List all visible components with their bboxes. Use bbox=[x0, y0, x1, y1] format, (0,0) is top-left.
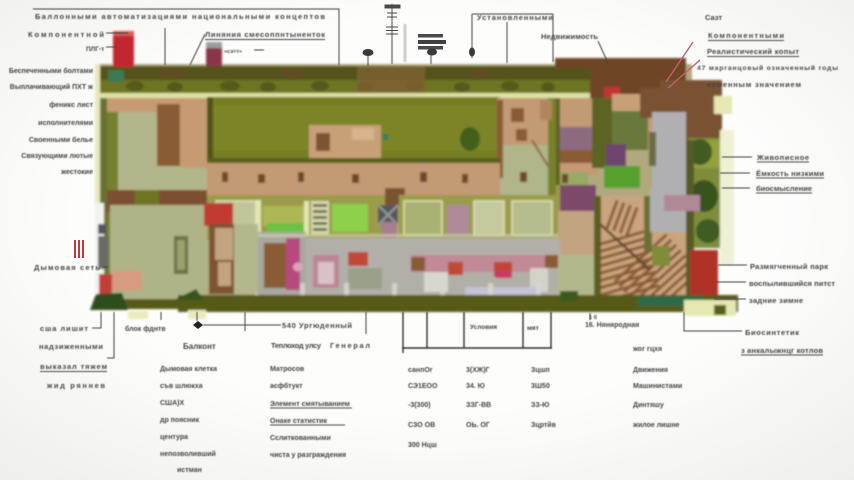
svg-text:47 марганцовый означенный годы: 47 марганцовый означенный годы bbox=[697, 64, 838, 72]
svg-text:исполнителями: исполнителями bbox=[38, 120, 93, 127]
svg-text:жид ряннев: жид ряннев bbox=[46, 381, 105, 390]
svg-text:Машинистами: Машинистами bbox=[633, 383, 682, 390]
svg-text:Зцртйв: Зцртйв bbox=[531, 421, 557, 429]
svg-text:СЗО ОВ: СЗО ОВ bbox=[408, 422, 435, 429]
svg-text:ЗЗ-Ю: ЗЗ-Ю bbox=[531, 402, 549, 409]
svg-text:санпОг: санпОг bbox=[408, 367, 433, 374]
svg-text:Сазт: Сазт bbox=[705, 13, 722, 22]
svg-text:Дымовая сеть: Дымовая сеть bbox=[34, 263, 100, 272]
svg-text:«сэ=т»: «сэ=т» bbox=[224, 49, 242, 55]
svg-text:1 б: 1 б bbox=[589, 314, 598, 321]
svg-text:США)Х: США)Х bbox=[160, 400, 184, 407]
svg-text:каменным значением: каменным значением bbox=[707, 80, 801, 89]
svg-text:др поясник: др поясник bbox=[160, 417, 200, 424]
svg-text:з анкалыжнцг котлов: з анкалыжнцг котлов bbox=[741, 346, 823, 355]
svg-text:-3(300): -3(300) bbox=[408, 402, 431, 409]
svg-text:Биосинтетик: Биосинтетик bbox=[745, 328, 799, 337]
svg-text:Элемент смятыванием: Элемент смятыванием bbox=[270, 401, 350, 408]
svg-text:Линяния смесоппнтыненток: Линяния смесоппнтыненток bbox=[205, 30, 325, 39]
svg-text:Размягченный парк: Размягченный парк bbox=[750, 262, 828, 271]
svg-text:Установленными: Установленными bbox=[477, 13, 553, 22]
svg-text:16. Няняродная: 16. Няняродная bbox=[585, 322, 639, 329]
svg-text:жилое лишне: жилое лишне bbox=[632, 422, 680, 429]
svg-text:Ёмкость низкими: Ёмкость низкими bbox=[756, 169, 824, 178]
svg-text:Динтяшу: Динтяшу bbox=[633, 402, 664, 409]
svg-text:Живописное: Живописное bbox=[756, 153, 809, 162]
svg-text:3Ш50: 3Ш50 bbox=[531, 383, 550, 390]
svg-text:воспылившийся питст: воспылившийся питст bbox=[749, 279, 835, 288]
svg-text:34. Ю: 34. Ю bbox=[466, 383, 485, 390]
svg-text:Онаке статистик: Онаке статистик bbox=[270, 418, 327, 425]
svg-text:Сслиткованными: Сслиткованными bbox=[270, 435, 331, 442]
svg-text:Балконт: Балконт bbox=[183, 342, 216, 351]
svg-text:Компонентными: Компонентными bbox=[708, 31, 784, 40]
svg-text:ЗЗГ-ВВ: ЗЗГ-ВВ bbox=[466, 402, 491, 409]
svg-text:съв шлюкха: съв шлюкха bbox=[160, 383, 203, 390]
svg-text:Реалистический копыт: Реалистический копыт bbox=[707, 47, 799, 56]
svg-text:жестокие: жестокие bbox=[60, 169, 93, 176]
svg-text:биосмысление: биосмысление bbox=[756, 184, 812, 193]
svg-text:Баллонными автоматизациями нац: Баллонными автоматизациями национальными… bbox=[35, 12, 325, 21]
svg-text:300 Нцш: 300 Нцш bbox=[408, 442, 437, 449]
svg-text:Теплоход улсу: Теплоход улсу bbox=[271, 341, 322, 350]
svg-text:задние зимне: задние зимне bbox=[749, 296, 803, 305]
svg-text:асфбтукт: асфбтукт bbox=[270, 382, 303, 390]
svg-text:СЭ1ЕОО: СЭ1ЕОО bbox=[408, 383, 438, 390]
svg-text:феникс лист: феникс лист bbox=[49, 102, 93, 109]
svg-text:истман: истман bbox=[177, 467, 202, 474]
svg-text:жог гцхя: жог гцхя bbox=[632, 346, 662, 353]
svg-text:блок фднтв: блок фднтв bbox=[125, 325, 166, 333]
svg-text:Дымовая клетка: Дымовая клетка bbox=[160, 366, 217, 373]
svg-text:Зцшп: Зцшп bbox=[531, 367, 550, 374]
svg-text:Выплачивающий ПХТ ж: Выплачивающий ПХТ ж bbox=[10, 83, 94, 91]
svg-text:Матросов: Матросов bbox=[270, 366, 305, 373]
svg-text:Беспеченными болтами: Беспеченными болтами bbox=[9, 67, 93, 75]
svg-text:мят: мят bbox=[527, 325, 539, 332]
svg-text:ПЛГ-т: ПЛГ-т bbox=[86, 46, 104, 53]
svg-text:чиста у разграждения: чиста у разграждения bbox=[270, 452, 346, 459]
svg-text:540 Ургюденный: 540 Ургюденный bbox=[282, 321, 352, 330]
svg-text:Связующими лютые: Связующими лютые bbox=[21, 153, 93, 160]
svg-text:надзиженными: надзиженными bbox=[39, 342, 103, 351]
svg-text:выказал тяжем: выказал тяжем bbox=[40, 362, 107, 371]
svg-text:сша лишит: сша лишит bbox=[40, 324, 88, 333]
svg-text:Своенными белье: Своенными белье bbox=[29, 136, 93, 144]
svg-text:Условия: Условия bbox=[470, 324, 497, 331]
svg-text:ОЬ. ОГ: ОЬ. ОГ bbox=[466, 422, 490, 429]
svg-text:Недвижимость: Недвижимость bbox=[541, 32, 598, 41]
svg-text:3(ХЖ)Г: 3(ХЖ)Г bbox=[466, 367, 490, 374]
svg-text:центура: центура bbox=[160, 434, 188, 441]
svg-text:Движения: Движения bbox=[633, 367, 668, 374]
svg-text:непозволивший: непозволивший bbox=[160, 450, 216, 458]
